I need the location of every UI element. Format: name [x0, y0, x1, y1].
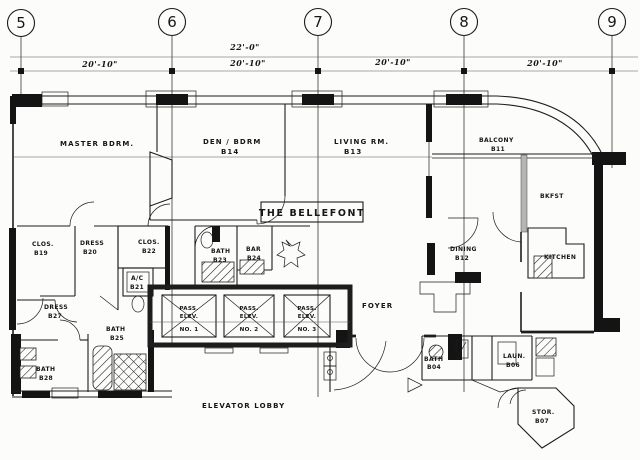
dimension-lines: 20'-10" 22'-0" 20'-10" 20'-10" 20'-10"	[10, 42, 638, 74]
room-label-den: DEN / BDRM	[203, 138, 261, 146]
room-label-elevator-lobby: ELEVATOR LOBBY	[202, 402, 285, 410]
room-number-dress-b27: B27	[48, 313, 62, 320]
dim-8-9: 20'-10"	[526, 58, 563, 68]
room-label-bkfst: BKFST	[540, 193, 564, 200]
elev1-line3: NO. 1	[180, 327, 199, 333]
elev1-line1: PASS.	[179, 306, 198, 312]
room-number-bar-b24: B24	[247, 255, 261, 262]
elevator-bank: PASS. ELEV. NO. 1 PASS. ELEV. NO. 2 PASS…	[150, 287, 350, 353]
room-label-bath-b25: BATH	[106, 326, 125, 333]
dim-overall: 22'-0"	[229, 42, 260, 52]
floor-plan-sheet: 5 6 7 8 9 20'-10" 22'-0" 20'-10" 20'-10"…	[0, 0, 640, 460]
column-number-9: 9	[607, 13, 617, 31]
room-number-balcony: B11	[491, 146, 505, 153]
title-box: THE BELLEFONT	[259, 202, 365, 222]
elev2-line2: ELEV.	[240, 314, 258, 320]
room-label-dress-b20: DRESS	[80, 240, 104, 247]
room-number-living: B13	[344, 148, 362, 156]
room-number-dining: B12	[455, 255, 469, 262]
room-label-foyer: FOYER	[362, 302, 393, 310]
room-number-stor-b07: B07	[535, 418, 549, 425]
room-label-balcony: BALCONY	[479, 137, 514, 144]
column-number-7: 7	[313, 13, 323, 31]
plan-title: THE BELLEFONT	[259, 208, 365, 219]
elev3-line3: NO. 3	[298, 327, 317, 333]
room-label-dress-b27: DRESS	[44, 304, 68, 311]
room-label-bath-b28: BATH	[36, 366, 55, 373]
room-label-stor-b07: STOR.	[532, 409, 555, 416]
room-label-kitchen: KITCHEN	[544, 254, 576, 261]
room-label-laun-b06: LAUN.	[503, 353, 525, 360]
room-number-laun-b06: B06	[506, 362, 520, 369]
room-label-clos-b19: CLOS.	[32, 241, 54, 248]
room-label-bath-b04: BATH	[424, 356, 443, 363]
room-label-clos-b22: CLOS.	[138, 239, 160, 246]
elev2-line3: NO. 2	[240, 327, 259, 333]
dim-5-6: 20'-10"	[81, 59, 118, 69]
room-number-clos-b22: B22	[142, 248, 156, 255]
floor-plan-drawing: 5 6 7 8 9 20'-10" 22'-0" 20'-10" 20'-10"…	[0, 0, 640, 460]
decorative-plant	[277, 240, 305, 267]
room-number-bath-b28: B28	[39, 375, 53, 382]
room-number-ac-b21: B21	[130, 284, 144, 291]
elev3-line1: PASS.	[297, 306, 316, 312]
room-label-master-bdrm: MASTER BDRM.	[60, 140, 134, 148]
column-number-6: 6	[167, 13, 177, 31]
room-label-bar-b24: BAR	[246, 246, 261, 253]
room-label-bath-b23: BATH	[211, 248, 230, 255]
room-number-bath-b23: B23	[213, 257, 227, 264]
elev1-line2: ELEV.	[180, 314, 198, 320]
room-number-dress-b20: B20	[83, 249, 97, 256]
room-number-bath-b25: B25	[110, 335, 124, 342]
room-number-den: B14	[221, 148, 239, 156]
dim-7-8: 20'-10"	[374, 57, 411, 67]
elevator-sill-1	[205, 348, 233, 353]
elevator-sill-2	[260, 348, 288, 353]
room-number-bath-b04: B04	[427, 364, 441, 371]
column-number-8: 8	[459, 13, 469, 31]
elev3-line2: ELEV.	[298, 314, 316, 320]
room-label-ac-b21: A/C	[131, 275, 144, 282]
elev2-line1: PASS.	[239, 306, 258, 312]
room-label-dining: DINING	[450, 246, 477, 253]
room-number-clos-b19: B19	[34, 250, 48, 257]
room-label-living: LIVING RM.	[334, 138, 389, 146]
dim-6-7: 20'-10"	[229, 58, 266, 68]
column-number-5: 5	[16, 14, 26, 32]
